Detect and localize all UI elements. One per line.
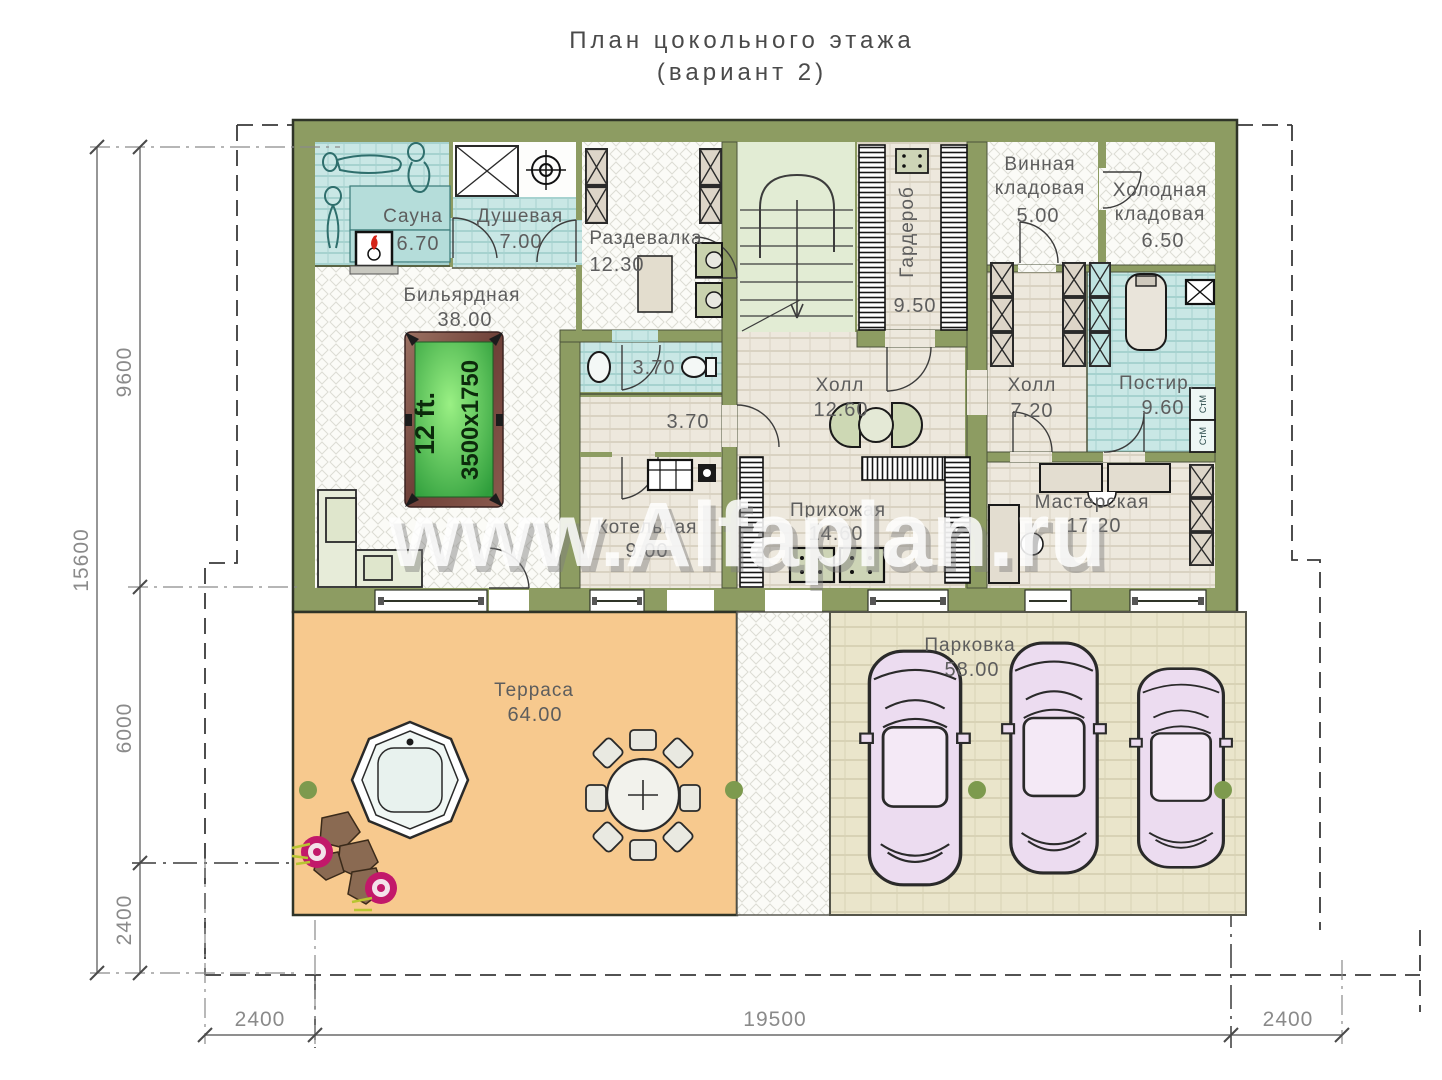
wc-toilet-bowl [682,357,706,377]
label-hall-small: Холл [1008,375,1057,396]
label-dressing: Раздевалка [589,228,702,249]
dim-left-mid: 6000 [113,703,136,754]
area-laundry: 9.60 [1142,397,1185,419]
dim-left-bottom: 2400 [113,895,136,946]
title-line2: (вариант 2) [657,59,827,86]
label-shower: Душевая [477,206,563,227]
area-shower: 7.00 [500,231,543,253]
area-hall-main: 12.60 [813,399,868,421]
dining-set [586,730,700,860]
workbench-2 [1108,464,1170,492]
terrace-door-gap [667,590,714,612]
area-wine: 5.00 [1017,205,1060,227]
car-2 [1002,643,1106,873]
area-dressing: 12.30 [589,254,644,276]
area-hall-small: 7.20 [1011,400,1054,422]
dim-left-total: 15600 [70,528,93,591]
window [1025,590,1071,612]
billiard-dims-label: 3500x1750 [457,360,484,480]
window [868,590,948,612]
label-parking: Парковка [924,635,1015,656]
floor-plan-drawing: План цокольного этажа (вариант 2) [0,0,1442,1080]
sauna-stove-base [350,266,398,274]
watermark-text: www.Alfaplan.ru [387,484,1105,586]
billiard-door-gap [489,590,529,612]
window [1130,590,1206,612]
wardrobe-table [896,149,928,173]
area-cold: 6.50 [1142,230,1185,252]
coat-rack-top [862,457,945,480]
staircase-floor [737,142,855,332]
watermark: www.Alfaplan.ru www.Alfaplan.ru [387,484,1110,592]
dim-bottom-left: 2400 [235,1008,286,1031]
wc-toilet-tank [706,358,716,376]
floor-plan-page: План цокольного этажа (вариант 2) [0,0,1442,1080]
wc-sink [588,352,610,382]
washer2-label: СтМ [1198,427,1208,445]
area-wardrobe: 9.50 [894,295,937,317]
label-cold-1: Холодная [1113,180,1208,201]
entrance-door-gap [765,590,822,612]
dim-left-top: 9600 [113,347,136,398]
window [375,590,487,612]
area-parking: 58.00 [944,659,999,681]
car-1 [860,651,969,885]
area-sauna: 6.70 [397,233,440,255]
area-billiard: 38.00 [437,309,492,331]
label-wine-2: кладовая [995,178,1086,199]
label-wardrobe: Гардероб [897,186,918,278]
window [590,590,644,612]
parking [830,612,1246,915]
title-line1: План цокольного этажа [569,27,914,54]
billiard-table: 12 ft. 3500x1750 [405,332,503,507]
dim-bottom-center: 19500 [743,1008,806,1031]
label-cold-2: кладовая [1115,204,1206,225]
label-sauna: Сауна [383,206,443,227]
entrance-porch [737,612,830,915]
washing-machines: СтМ СтМ [1190,388,1215,452]
label-hall-main: Холл [816,375,865,396]
label-terrace: Терраса [494,680,574,701]
dim-bottom-right: 2400 [1263,1008,1314,1031]
label-wine-1: Винная [1004,154,1075,175]
area-corridor: 3.70 [667,411,710,433]
label-billiard: Бильярдная [404,285,521,306]
drawing-title: План цокольного этажа (вариант 2) [569,27,914,86]
billiard-size-label: 12 ft. [410,392,440,455]
hot-tub [352,722,468,838]
car-3 [1130,669,1232,868]
workshop-cabinets [1190,465,1213,565]
terrace [292,612,737,915]
area-wc: 3.70 [633,357,676,379]
area-terrace: 64.00 [507,704,562,726]
washer1-label: СтМ [1198,395,1208,413]
label-laundry: Постир. [1119,373,1195,394]
